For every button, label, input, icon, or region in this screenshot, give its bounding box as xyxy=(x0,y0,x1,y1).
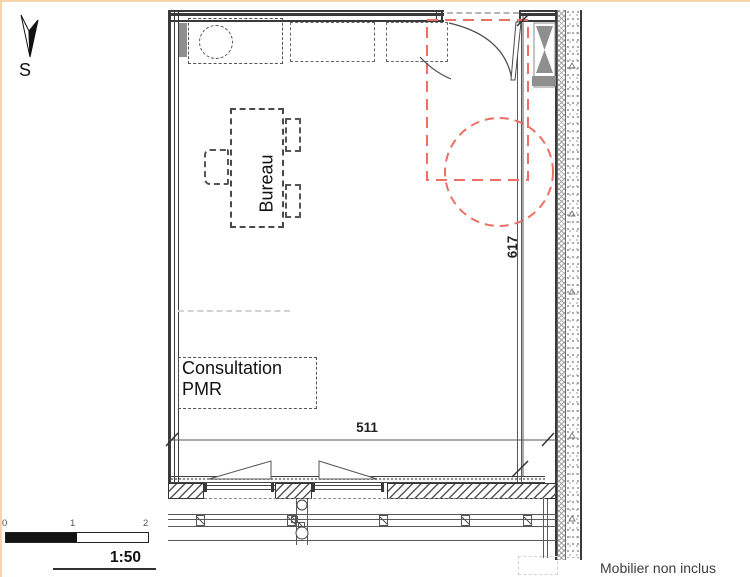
room-label-line1: Consultation xyxy=(182,358,282,379)
top-wall-endcap2 xyxy=(436,10,437,21)
facade-post-3 xyxy=(379,515,388,526)
frame-top-edge xyxy=(0,0,750,2)
scale-bar-filled-half xyxy=(6,533,77,542)
visitor-chair-2 xyxy=(285,184,301,218)
left-wall-inner-line xyxy=(178,10,179,483)
door-leaf xyxy=(511,22,521,80)
window-1-jamb-left xyxy=(204,483,207,492)
dimension-height-value: 617 xyxy=(497,227,527,267)
bottom-wall-pier-left xyxy=(168,483,204,499)
facade-line-4 xyxy=(168,540,558,541)
scale-underline xyxy=(53,568,156,570)
downpipe-box-a xyxy=(291,516,298,523)
sink-circle xyxy=(199,25,233,59)
dimension-width-value: 511 xyxy=(349,420,385,437)
top-wall-stub-cap xyxy=(519,10,521,21)
right-wall-lower-line-b xyxy=(547,499,548,558)
wall-cabinet-dashed-2 xyxy=(386,22,448,62)
scale-tick-0: 0 xyxy=(2,518,7,529)
wall-pilaster xyxy=(179,23,187,57)
window-2-jamb-left xyxy=(312,483,315,492)
downpipe-line-b xyxy=(307,499,308,545)
frame-left-edge xyxy=(0,0,2,577)
floor-plan: Bureau Consultation PMR 511 617 0 1 2 1:… xyxy=(0,0,750,577)
downpipe-box-b xyxy=(298,522,305,529)
scale-bar xyxy=(5,532,149,543)
scale-ratio: 1:50 xyxy=(110,549,141,567)
furniture-legend-text: Mobilier non inclus xyxy=(600,560,716,576)
desk-label-text: Bureau xyxy=(257,154,278,212)
right-wall-outer-line xyxy=(580,10,582,560)
bottom-wall-insulation-strip xyxy=(170,476,545,483)
north-label: S xyxy=(19,60,31,81)
facade-line-3 xyxy=(168,526,558,527)
threshold-bar xyxy=(532,76,556,86)
facade-line-2 xyxy=(168,519,558,520)
door-header-dashed xyxy=(447,12,519,14)
desk-label: Bureau xyxy=(255,134,280,234)
facade-line-1 xyxy=(168,514,558,515)
room-label: Consultation PMR xyxy=(182,358,282,400)
window-2-jamb-right xyxy=(381,483,384,492)
left-wall-mid-line xyxy=(174,10,175,483)
scale-tick-1: 1 xyxy=(70,518,75,529)
wall-cabinet-dashed-1 xyxy=(290,22,375,62)
window-1-glazing xyxy=(204,485,275,490)
top-wall-outer-line xyxy=(168,10,444,12)
bottom-wall-pier-mid xyxy=(275,483,312,499)
facade-post-5 xyxy=(523,515,532,526)
top-wall-stub-core xyxy=(519,13,557,16)
furniture-legend-swatch xyxy=(518,556,558,575)
dimension-height-text: 617 xyxy=(505,236,520,259)
facade-post-4 xyxy=(461,515,470,526)
scale-tick-2: 2 xyxy=(143,518,148,529)
visitor-chair-1 xyxy=(285,118,301,152)
right-wall-lower-line-a xyxy=(543,499,544,558)
right-wall-concrete-layer xyxy=(566,10,580,558)
desk-chair xyxy=(204,149,229,185)
bottom-wall-dashed-face-line xyxy=(204,498,545,500)
right-wall-insulation-layer xyxy=(557,10,566,560)
north-arrow-icon xyxy=(21,15,38,57)
top-wall-stub-outer xyxy=(519,10,557,12)
door-symbol-bowtie xyxy=(532,23,556,87)
window-2-glazing xyxy=(312,485,384,490)
window-1-jamb-right xyxy=(271,483,274,492)
bottom-wall-pier-right xyxy=(387,483,557,499)
top-wall-endcap xyxy=(441,10,443,21)
room-label-line2: PMR xyxy=(182,379,282,400)
left-wall-outer-line xyxy=(168,10,171,483)
facade-post-1 xyxy=(196,515,205,526)
ceiling-dashed-line xyxy=(178,310,290,312)
top-wall-core xyxy=(168,13,444,16)
lineart-overlay xyxy=(0,0,750,577)
top-wall-stub-inner xyxy=(519,20,557,22)
door-swing-arc xyxy=(449,23,512,80)
pmr-turning-circle xyxy=(445,118,553,226)
